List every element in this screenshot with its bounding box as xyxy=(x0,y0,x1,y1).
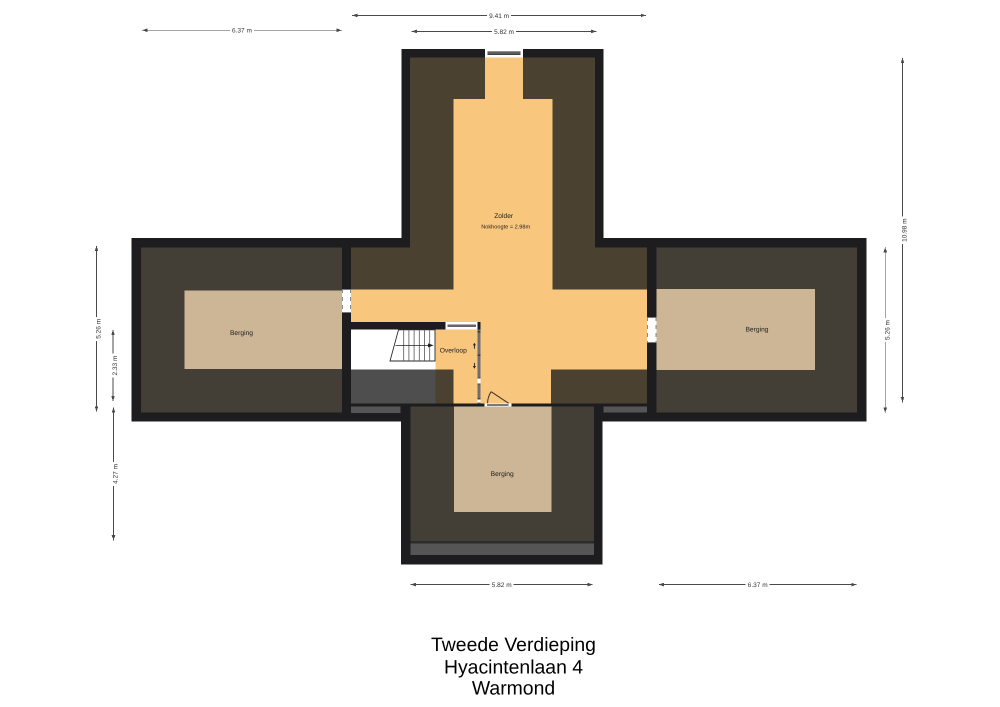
svg-text:Tweede Verdieping: Tweede Verdieping xyxy=(431,634,596,656)
svg-text:2.33 m: 2.33 m xyxy=(112,356,119,376)
svg-text:Nokhoogte = 2.98m: Nokhoogte = 2.98m xyxy=(481,223,530,230)
svg-text:Warmond: Warmond xyxy=(472,677,555,699)
svg-text:Berging: Berging xyxy=(491,471,514,478)
svg-text:4.27 m: 4.27 m xyxy=(113,464,120,484)
svg-text:9.41 m: 9.41 m xyxy=(489,13,509,20)
svg-text:5.26 m: 5.26 m xyxy=(96,319,103,339)
svg-text:Berging: Berging xyxy=(745,327,768,334)
svg-text:5.26 m: 5.26 m xyxy=(884,320,891,340)
svg-text:Hyacintenlaan 4: Hyacintenlaan 4 xyxy=(444,656,583,678)
svg-text:Overloop: Overloop xyxy=(440,348,467,355)
svg-text:6.37 m: 6.37 m xyxy=(748,582,768,589)
svg-text:10.98 m: 10.98 m xyxy=(902,218,909,242)
svg-text:5.82 m: 5.82 m xyxy=(492,582,512,589)
svg-text:Zolder: Zolder xyxy=(494,213,514,220)
svg-text:Berging: Berging xyxy=(230,330,253,337)
svg-text:5.82 m: 5.82 m xyxy=(494,29,514,36)
svg-text:6.37 m: 6.37 m xyxy=(232,28,252,35)
